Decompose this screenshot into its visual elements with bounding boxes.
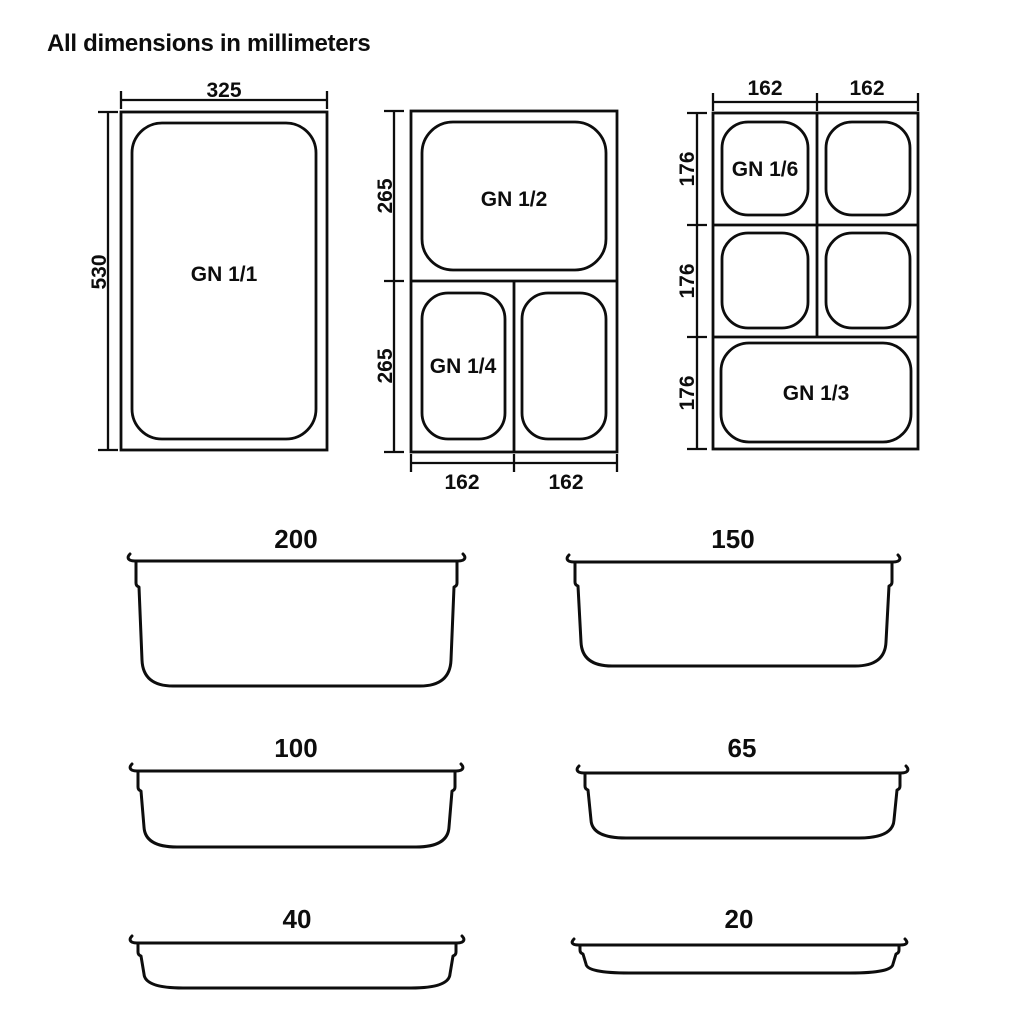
gn-1-1-plan-view: 325 530 GN 1/1	[88, 79, 327, 450]
gn-1-1-width-value: 325	[206, 79, 241, 102]
depth-label: 100	[274, 733, 317, 763]
depth-label: 65	[728, 733, 757, 763]
gn-1-6-pan-opening-mid-right	[826, 233, 910, 328]
depth-label: 40	[283, 904, 312, 934]
gn-thirds-width-dimension-line	[713, 93, 918, 111]
gn-halves-bottom-right-width-value: 162	[548, 471, 583, 494]
depth-label: 20	[725, 904, 754, 934]
gn-halves-width-dimension-line	[411, 454, 617, 472]
profile-depth-20: 20	[572, 904, 907, 973]
gn-halves-plan-view: 265 265 162 162 GN 1/2 GN 1/4	[374, 111, 617, 494]
gn-1-1-height-value: 530	[88, 254, 111, 289]
gn-halves-lower-height-value: 265	[374, 348, 397, 383]
gastronorm-dimensions-page: All dimensions in millimeters 325 530 GN…	[0, 0, 1024, 1024]
profile-depth-65: 65	[577, 733, 908, 838]
pan-cross-section	[128, 554, 465, 686]
gn-halves-bottom-left-width-value: 162	[444, 471, 479, 494]
gn-thirds-row2-height-value: 176	[676, 263, 699, 298]
pan-cross-section	[567, 555, 900, 666]
profile-depth-40: 40	[130, 904, 464, 988]
profile-depth-200: 200	[128, 524, 465, 686]
gn-thirds-top-left-width-value: 162	[747, 77, 782, 100]
profile-depth-150: 150	[567, 524, 900, 666]
gn-thirds-row3-height-value: 176	[676, 375, 699, 410]
gn-halves-height-dimension-line	[384, 111, 404, 452]
gn-thirds-row1-height-value: 176	[676, 151, 699, 186]
gn-1-6-pan-opening-mid-left	[722, 233, 808, 328]
pan-cross-section	[572, 939, 907, 973]
gn-thirds-plan-view: 162 162 176 176 176 GN 1/6 GN 1/3	[676, 77, 918, 449]
gastronorm-diagram: 325 530 GN 1/1 265 265 162 162 GN 1/2 GN…	[0, 0, 1024, 1024]
depth-label: 150	[711, 524, 754, 554]
gn-thirds-row-dividers	[713, 225, 918, 337]
gn-1-1-label: GN 1/1	[191, 263, 258, 286]
gn-1-6-label: GN 1/6	[732, 158, 799, 181]
gn-halves-upper-height-value: 265	[374, 178, 397, 213]
pan-cross-section	[130, 936, 464, 988]
gn-1-4-label: GN 1/4	[430, 355, 497, 378]
gn-1-2-label: GN 1/2	[481, 188, 548, 211]
gn-thirds-top-right-width-value: 162	[849, 77, 884, 100]
gn-1-4-pan-opening-right	[522, 293, 606, 439]
depth-label: 200	[274, 524, 317, 554]
pan-cross-section	[577, 766, 908, 838]
gn-1-6-pan-opening-top-right	[826, 122, 910, 215]
profile-depth-100: 100	[130, 733, 463, 847]
gn-1-3-label: GN 1/3	[783, 382, 850, 405]
pan-cross-section	[130, 764, 463, 847]
